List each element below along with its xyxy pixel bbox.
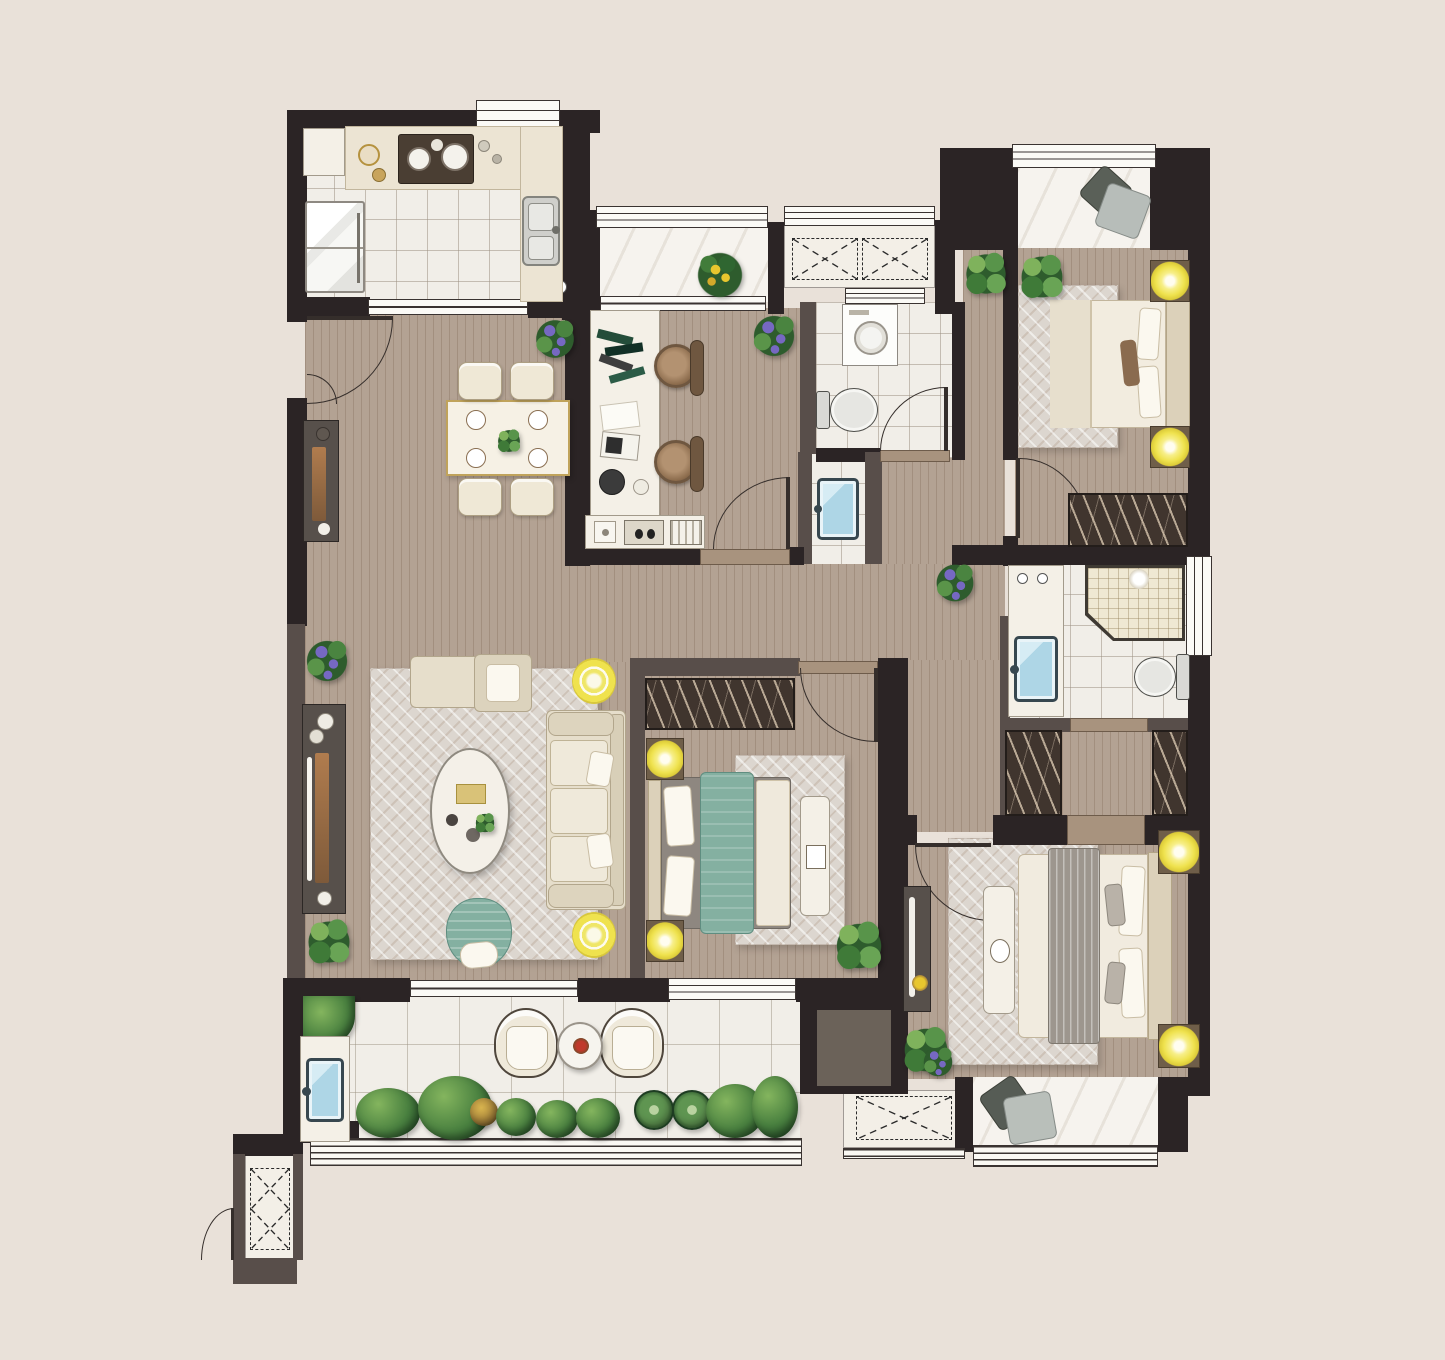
- bedroom-north-door-leaf: [1016, 458, 1020, 538]
- toilet-bowl: [830, 388, 878, 432]
- wall-utility-right: [293, 1154, 303, 1260]
- sink-basin-1: [528, 203, 554, 231]
- wall-south-band-2: [578, 978, 670, 1002]
- fridge-handle: [357, 213, 360, 283]
- wall-master-top-2: [993, 815, 1069, 845]
- sliding-door-kitchen: [368, 299, 528, 315]
- cabinet-oven: [624, 520, 664, 545]
- bed-middle: [648, 774, 798, 932]
- bed-middle-headboard: [648, 780, 661, 926]
- coffee-table: [430, 748, 510, 874]
- oven-dot-2: [647, 529, 655, 539]
- bedroom-middle-door-leaf: [874, 668, 878, 742]
- shower-head: [1129, 569, 1149, 589]
- refrigerator: [305, 201, 365, 293]
- window-master-bath: [1186, 556, 1212, 656]
- bed-middle-pillow-2: [663, 855, 695, 917]
- outdoor-chair-1: [494, 1008, 558, 1078]
- tv-console-wood: [315, 753, 329, 883]
- sill-bath-closet: [1070, 718, 1148, 732]
- utensil-decor-1: [478, 140, 490, 152]
- cabinet-kettle: [594, 521, 616, 543]
- bed-master-throw: [1048, 848, 1100, 1044]
- bench-master-tray: [990, 939, 1010, 963]
- wall-bay-south-east: [1158, 1077, 1188, 1152]
- bush-1: [356, 1088, 420, 1138]
- ac-unit-north-1: [792, 238, 858, 280]
- wall-kitchen-bottom-w: [303, 297, 370, 318]
- toilet-master: [1134, 654, 1192, 700]
- bed-master-headboard: [1148, 852, 1172, 1040]
- task-chair-1: [650, 338, 708, 398]
- entry-door-leaf: [307, 316, 393, 320]
- railing-bay-south: [973, 1145, 1158, 1167]
- wall-south-band-3: [796, 978, 895, 1002]
- vanity-faucet-2: [1037, 573, 1048, 584]
- bedside-lamp-north-2: [1150, 426, 1190, 468]
- washer-drum: [854, 321, 888, 355]
- oven-dot-1: [635, 529, 643, 539]
- dining-chair-3: [458, 478, 502, 516]
- master-tv-console: [903, 886, 931, 1012]
- plant-living-2: [306, 916, 352, 968]
- balcony-sink: [306, 1058, 344, 1122]
- toilet-bathroom: [816, 386, 880, 434]
- bench-bedroom-middle: [800, 796, 830, 916]
- kettle-dot: [602, 529, 609, 536]
- bush-5: [536, 1100, 578, 1138]
- sofa-pillow-2: [586, 832, 614, 869]
- bedside-lamp-middle-1: [646, 738, 684, 780]
- master-vanity-sink: [1014, 636, 1058, 702]
- closet-wardrobe-left: [1005, 730, 1062, 816]
- wall-bay-south-west: [955, 1077, 973, 1152]
- burner-right: [441, 143, 469, 171]
- bay-south-cushion-light: [1002, 1090, 1058, 1146]
- sink-faucet: [552, 226, 560, 234]
- plant-dining: [533, 316, 577, 362]
- wall-nbalcony-right: [768, 222, 784, 314]
- utility-door-leaf: [231, 1208, 234, 1260]
- window-north-balcony: [596, 206, 768, 228]
- toilet-master-bowl: [1134, 657, 1176, 697]
- bench-master: [983, 886, 1015, 1014]
- place-setting-2: [528, 410, 548, 430]
- task-chair-2-back: [690, 436, 704, 492]
- wall-right-upper: [1188, 250, 1210, 558]
- tv-plate-2: [309, 729, 324, 744]
- window-platform-north: [784, 206, 935, 226]
- sideboard-vase: [316, 427, 330, 441]
- study-door-leaf: [786, 477, 790, 549]
- bed-middle-fold: [756, 780, 790, 926]
- bush-8: [752, 1076, 798, 1138]
- sofa-arm-bottom: [548, 884, 614, 908]
- bed-middle-runner: [700, 772, 754, 934]
- sideboard: [303, 420, 339, 542]
- tv-vase: [317, 891, 332, 906]
- floor-plan: [0, 0, 1445, 1360]
- bowl-decor: [372, 168, 386, 182]
- bed-middle-pillow-1: [663, 785, 695, 847]
- wall-study-bottom-e: [788, 547, 804, 565]
- outdoor-chair-2-cushion: [612, 1026, 654, 1070]
- basin-nook-sink: [817, 478, 859, 540]
- bed-north-headboard: [1166, 296, 1190, 432]
- wall-bedroom-north-bottom: [952, 545, 1188, 565]
- burner-knob: [431, 139, 443, 151]
- tv-plate-1: [317, 713, 334, 730]
- sofa-cushion-2: [550, 788, 608, 834]
- utensil-decor-2: [492, 154, 502, 164]
- sill-closet-master: [1067, 815, 1145, 845]
- plant-hall-pocket: [934, 560, 976, 606]
- bathroom-door-leaf: [944, 387, 948, 451]
- plant-niche: [963, 250, 1009, 298]
- bed-north-pillow-1: [1136, 307, 1162, 360]
- outdoor-table: [557, 1022, 603, 1070]
- wall-bedroom-middle-top: [630, 658, 800, 676]
- accent-armchair: [442, 898, 516, 978]
- tv-console: [302, 704, 346, 914]
- coffee-table-books: [456, 784, 486, 804]
- master-sink-faucet: [1010, 665, 1019, 674]
- wall-nook-right: [865, 452, 882, 564]
- place-setting-3: [466, 448, 486, 468]
- plant-living-1: [304, 636, 350, 686]
- washer-controls: [849, 310, 869, 315]
- vanity-faucet-1: [1017, 573, 1028, 584]
- railing-platform-south: [843, 1148, 965, 1159]
- chaise-base: [410, 656, 480, 708]
- outdoor-table-decor: [573, 1038, 589, 1054]
- coffee-table-plant: [474, 812, 496, 834]
- desk-tray: [599, 469, 625, 495]
- sofa-arm-top: [548, 712, 614, 736]
- window-bedroom-middle: [668, 978, 796, 1000]
- desk-laptop: [600, 431, 641, 461]
- railing-south-balcony: [310, 1138, 802, 1166]
- task-chair-2: [650, 434, 708, 494]
- bedside-lamp-master-2: [1158, 1024, 1200, 1068]
- plant-master-2: [922, 1044, 954, 1080]
- wall-utility-top: [233, 1134, 303, 1156]
- desk-book-2: [605, 342, 644, 356]
- bedside-lamp-master-1: [1158, 830, 1200, 874]
- fridge-divider: [307, 247, 363, 249]
- bush-3: [470, 1098, 498, 1126]
- wall-master-top-1: [905, 815, 917, 845]
- sliding-door-living-balcony: [410, 980, 578, 997]
- floor-corridor: [905, 660, 1005, 832]
- wall-utility-bottom: [233, 1258, 297, 1284]
- sideboard-wood: [312, 447, 326, 521]
- bedside-lamp-middle-2: [646, 920, 684, 962]
- outdoor-chair-1-cushion: [506, 1026, 548, 1070]
- ac-unit-south: [856, 1096, 952, 1140]
- laptop-screen: [605, 437, 623, 455]
- bed-north-sheet: [1050, 300, 1092, 428]
- plant-bedroom-north: [1018, 252, 1066, 302]
- bush-4: [496, 1098, 536, 1136]
- master-door-leaf: [915, 843, 991, 847]
- desk-paper: [600, 401, 641, 431]
- basin-faucet: [814, 505, 822, 513]
- cooktop: [398, 134, 474, 184]
- table-centerpiece: [496, 428, 522, 454]
- ac-unit-north-2: [862, 238, 928, 280]
- floor-lamp-1: [572, 658, 616, 704]
- plant-bedroom-middle: [834, 918, 884, 974]
- sill-bathroom-door: [880, 450, 950, 462]
- sofa: [546, 710, 626, 910]
- flower-pot-north: [692, 248, 748, 302]
- wardrobe-bedroom-north: [1068, 493, 1188, 547]
- bench-middle-tray: [806, 845, 826, 869]
- window-bay-north: [1012, 144, 1156, 168]
- window-bath-transom: [845, 288, 925, 304]
- wall-study-bottom-w: [575, 547, 702, 565]
- sofa-back: [610, 714, 624, 906]
- utility-equipment: [250, 1168, 290, 1250]
- lounge-chaise: [410, 654, 532, 712]
- dining-table: [446, 400, 570, 476]
- balcony-sink-faucet: [302, 1087, 311, 1096]
- chaise-pillow: [486, 664, 520, 702]
- closet-wardrobe-right: [1152, 730, 1188, 816]
- bed-north: [1050, 296, 1190, 432]
- floor-lamp-2: [572, 912, 616, 958]
- task-chair-1-back: [690, 340, 704, 396]
- bed-north-pillow-2: [1136, 365, 1162, 418]
- bedside-lamp-north-1: [1150, 260, 1190, 302]
- cabinet-appliance: [670, 520, 702, 545]
- study-cabinet: [585, 515, 705, 549]
- duct-shaft: [815, 1008, 893, 1088]
- sliding-door-north-balcony: [600, 296, 766, 311]
- tv-soundbar: [307, 757, 312, 881]
- burner-left: [407, 147, 431, 171]
- toilet-master-tank: [1176, 654, 1190, 700]
- plate-decor: [358, 144, 380, 166]
- outdoor-chair-2: [600, 1008, 664, 1078]
- wall-bathroom-right: [952, 302, 965, 460]
- master-console-flower: [912, 975, 928, 991]
- wardrobe-bedroom-middle: [645, 678, 795, 730]
- coffee-table-cup-1: [446, 814, 458, 826]
- sink-basin-2: [528, 236, 554, 260]
- washing-machine: [842, 304, 898, 366]
- floor-closet: [1062, 730, 1152, 815]
- dining-chair-4: [510, 478, 554, 516]
- plant-study: [750, 312, 798, 360]
- bed-master: [1018, 850, 1172, 1042]
- kitchen-sink: [522, 196, 560, 266]
- toilet-tank: [816, 391, 830, 429]
- wall-ne-pillar-west: [940, 148, 1018, 250]
- dining-chair-1: [458, 362, 502, 400]
- kitchen-cabinet: [303, 128, 345, 176]
- place-setting-4: [528, 448, 548, 468]
- utility-door-arc: [201, 1208, 234, 1260]
- topiary-1: [634, 1090, 674, 1130]
- desk-cup: [633, 479, 649, 495]
- place-setting-1: [466, 410, 486, 430]
- dining-chair-2: [510, 362, 554, 400]
- wall-utility-left: [233, 1154, 245, 1266]
- bush-6: [576, 1098, 620, 1138]
- wall-ne-pillar-east: [1150, 148, 1210, 250]
- sideboard-cup: [318, 523, 330, 535]
- armchair-pillow: [459, 940, 500, 970]
- wall-bathroom-left: [800, 302, 816, 454]
- wall-bedroom-middle-left: [630, 658, 645, 986]
- sill-study-door: [700, 549, 790, 565]
